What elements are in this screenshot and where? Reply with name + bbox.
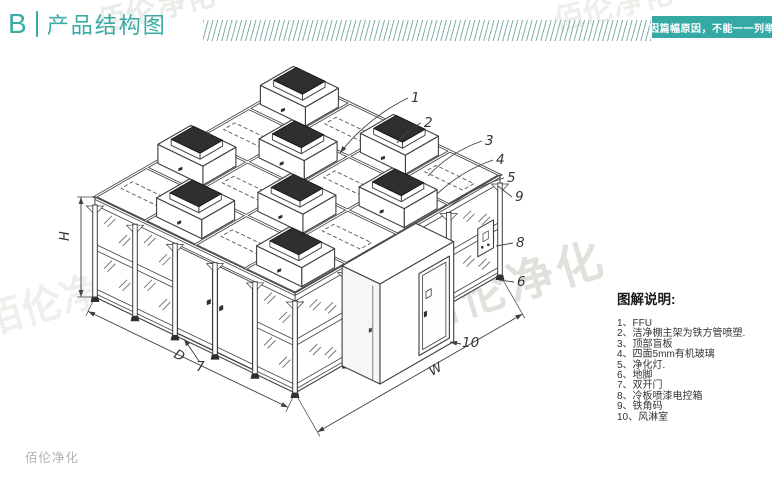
legend-items: 1、FFU2、洁净棚主架为铁方管喷塑.3、顶部盲板4、四面5mm有机玻璃5、净化… [617,319,775,423]
callout-number-7: 7 [196,359,205,375]
callout-number-6: 6 [517,274,526,290]
footer-logo-text: 佰伦净化 [25,447,79,466]
legend-panel: 图解说明: 1、FFU2、洁净棚主架为铁方管喷塑.3、顶部盲板4、四面5mm有机… [617,288,775,423]
callout-number-10: 10 [462,335,479,351]
header-hatch-decoration [203,20,651,41]
callout-number-9: 9 [515,189,524,205]
callout-10: 10 [450,335,479,351]
legend-title: 图解说明: [617,288,775,308]
dimension-label-height: H [58,231,73,241]
legend-item: 10、风淋室 [617,413,775,423]
callout-number-3: 3 [485,133,494,149]
callout-number-5: 5 [507,170,516,186]
page-title: 产品结构图 [47,8,167,40]
air-shower-door [419,256,449,356]
callout-number-1: 1 [411,90,420,106]
page-header: B 产品结构图 [8,8,167,40]
header-note-badge: 因篇幅原因，不能一一列举 [652,16,772,38]
callout-number-2: 2 [424,115,433,131]
dimension-label-depth: D [171,347,187,365]
section-letter: B [8,10,27,38]
callout-number-4: 4 [496,152,505,168]
title-separator [36,11,38,37]
callout-number-8: 8 [516,235,525,251]
dimension-label-width: W [427,359,447,379]
dimension-height: H [58,197,95,297]
